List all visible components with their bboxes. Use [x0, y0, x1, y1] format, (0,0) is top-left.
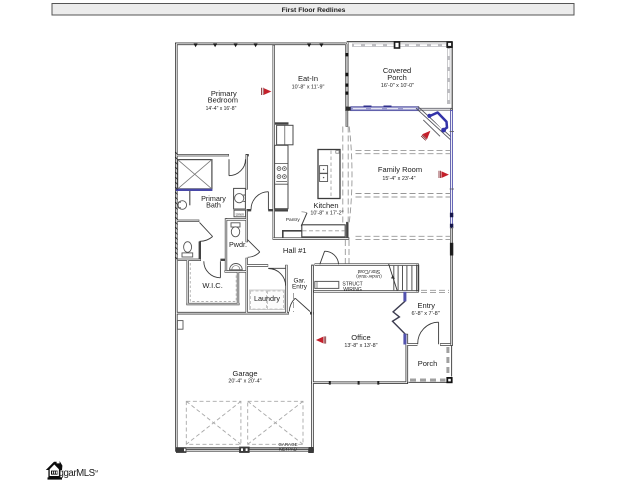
svg-text:(Under-Stair): (Under-Stair)	[356, 274, 382, 279]
svg-text:Entry: Entry	[292, 283, 308, 290]
svg-text:10'-8" x 11'-9": 10'-8" x 11'-9"	[292, 85, 325, 91]
svg-text:W.I.C.: W.I.C.	[202, 281, 222, 290]
svg-text:First Floor Redlines: First Floor Redlines	[282, 7, 346, 14]
svg-text:WIRING: WIRING	[343, 287, 362, 293]
svg-text:Linen: Linen	[236, 212, 244, 216]
svg-text:Porch: Porch	[418, 359, 438, 368]
svg-text:13'-8" x 13'-8": 13'-8" x 13'-8"	[344, 343, 377, 349]
svg-text:14'-4" x 16'-8": 14'-4" x 16'-8"	[206, 106, 237, 112]
svg-text:16'-0" x 10'-0": 16'-0" x 10'-0"	[381, 83, 414, 89]
svg-text:Entry: Entry	[418, 301, 436, 310]
svg-text:Laundry: Laundry	[254, 294, 280, 303]
svg-text:6'-8" x 7'-8": 6'-8" x 7'-8"	[412, 311, 440, 317]
svg-text:TM: TM	[93, 469, 98, 473]
svg-text:Porch: Porch	[387, 73, 407, 82]
svg-text:Garage: Garage	[232, 369, 257, 378]
svg-text:Family Room: Family Room	[378, 165, 422, 174]
svg-text:Stor./Coat: Stor./Coat	[357, 268, 380, 274]
svg-text:Bath: Bath	[206, 201, 221, 210]
svg-text:Eat-In: Eat-In	[298, 74, 318, 83]
svg-text:Bedroom: Bedroom	[208, 95, 238, 104]
svg-text:Kitchen: Kitchen	[313, 201, 338, 210]
svg-text:Pwdr.: Pwdr.	[229, 240, 247, 249]
svg-text:ggarMLS: ggarMLS	[59, 468, 96, 479]
svg-text:10'-8" x 17'-2": 10'-8" x 17'-2"	[310, 211, 343, 217]
svg-text:20'-4" x 20'-4": 20'-4" x 20'-4"	[228, 378, 261, 384]
svg-text:Office: Office	[351, 333, 370, 342]
svg-text:KEYPAD: KEYPAD	[279, 447, 298, 452]
svg-text:Pantry: Pantry	[286, 217, 300, 223]
svg-text:Hall #1: Hall #1	[283, 246, 307, 255]
svg-text:15'-4" x 23'-4": 15'-4" x 23'-4"	[382, 176, 415, 182]
